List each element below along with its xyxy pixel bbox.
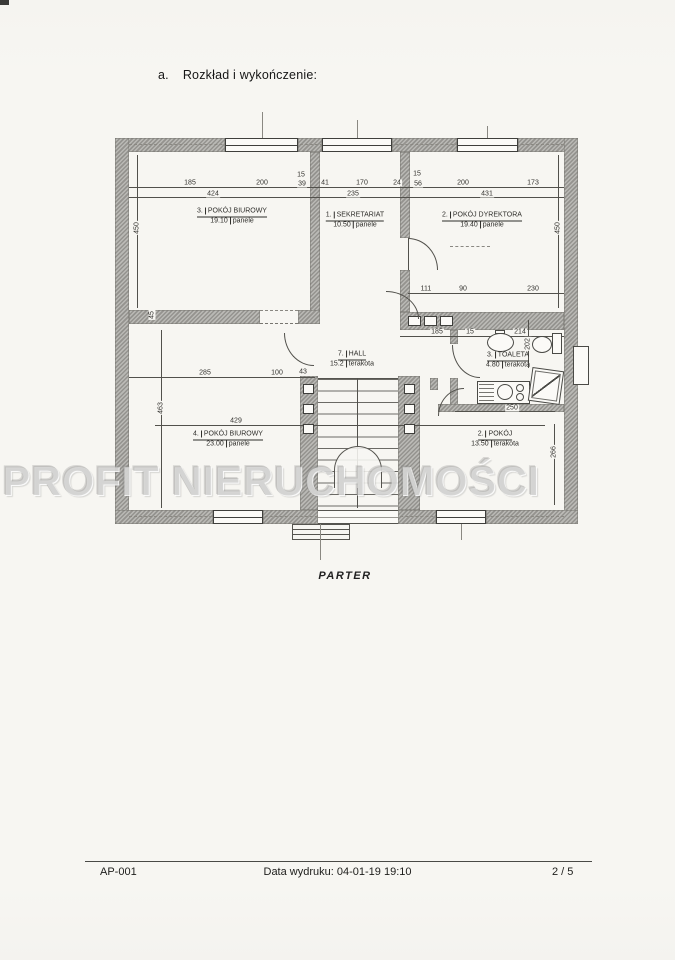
dim-label: 41 (320, 180, 330, 187)
window-bottom-2 (436, 510, 486, 524)
pier-block (404, 404, 415, 414)
entry-centerline (320, 524, 321, 560)
dim-label: 90 (458, 286, 468, 293)
dim-label: 200 (456, 180, 470, 187)
pier-block (303, 424, 314, 434)
sink-bowl (497, 384, 513, 400)
shower-tray (528, 367, 564, 405)
wall-hall-room2 (430, 378, 438, 390)
dim-label: 170 (355, 180, 369, 187)
dim-label: 173 (526, 180, 540, 187)
corridor-dashed-opening (450, 246, 490, 247)
window-top-3 (457, 138, 518, 152)
pier-block (303, 384, 314, 394)
washbasin (487, 333, 514, 352)
wall-room3-sekretariat (310, 152, 320, 312)
dim-label: 185 (430, 329, 444, 336)
dim-line (408, 293, 564, 294)
wall-bottom-seg4 (486, 510, 578, 524)
staircase (318, 378, 398, 508)
stair-pier-right (398, 376, 420, 510)
dim-label: 230 (526, 286, 540, 293)
stair-exit-opening (318, 510, 398, 524)
wall-left (115, 138, 129, 524)
pier-block (404, 384, 415, 394)
wall-top-seg2 (298, 138, 322, 152)
door-room2 (438, 388, 464, 416)
glass-block (424, 316, 437, 326)
glass-block (440, 316, 453, 326)
wall-toilet-west-upper (450, 330, 458, 344)
wall-opening-dashed (260, 310, 298, 324)
wall-bottom-seg3 (398, 510, 436, 524)
dim-label: 463 (158, 401, 165, 415)
dim-label: 235 (346, 191, 360, 198)
room-label-sekretariat: 1.SEKRETARIAT 10.50panele (326, 212, 384, 231)
dim-label: 200 (255, 180, 269, 187)
dim-label: 39 (297, 181, 307, 188)
door-room4 (284, 333, 314, 366)
dim-label: 424 (206, 191, 220, 198)
dim-line (155, 425, 545, 426)
wall-mid-left-end (298, 310, 320, 324)
room-label-pokoj-biurowy-bottom: 4.POKÓJ BIUROWY 23.00panele (193, 431, 263, 450)
dim-label: 24 (392, 180, 402, 187)
wall-right (564, 138, 578, 524)
plan-caption: PARTER (280, 570, 410, 582)
vent-shaft (573, 346, 589, 385)
room-label-pokoj-bottom: 2.POKÓJ 13.50terakota (471, 431, 519, 450)
dim-label: 202 (525, 337, 532, 351)
dim-label: 45 (149, 310, 156, 320)
dim-label: 56 (413, 181, 423, 188)
door-toilet (452, 345, 480, 378)
footer-print-info: Data wydruku: 04-01-19 19:10 (0, 866, 675, 878)
window-bottom-1 (213, 510, 263, 524)
dim-label: 15 (296, 172, 306, 179)
window-centerline (461, 524, 462, 540)
dim-label: 266 (551, 445, 558, 459)
burner (516, 393, 524, 401)
heading-text: Rozkład i wykończenie: (183, 68, 317, 82)
room-label-pokoj-biurowy-top: 3.POKÓJ BIUROWY 19.10panele (197, 208, 267, 227)
dim-label: 450 (134, 221, 141, 235)
window-centerline (357, 120, 358, 138)
window-centerline (487, 126, 488, 138)
dim-label: 431 (480, 191, 494, 198)
wall-bottom-seg1 (115, 510, 213, 524)
toilet-bowl (532, 336, 552, 353)
dim-label: 185 (183, 180, 197, 187)
room-label-toaleta: 3.TOALETA 4.80terakota (486, 352, 530, 371)
dim-line (554, 424, 555, 505)
door-dyrektor (408, 238, 438, 270)
footer-page-indicator: 2 / 5 (552, 866, 573, 878)
drainer-hatch (479, 384, 494, 402)
toilet-tank (552, 333, 562, 354)
scanned-document-page: a.Rozkład i wykończenie: (0, 0, 675, 960)
dim-label: 43 (298, 369, 308, 376)
heading-index: a. (158, 68, 169, 82)
window-top-1 (225, 138, 298, 152)
dim-label: 15 (465, 329, 475, 336)
room-label-pokoj-dyrektora: 2.POKÓJ DYREKTORA 19.40panele (442, 212, 522, 231)
dim-line (129, 187, 564, 188)
wall-bottom-seg2 (263, 510, 318, 524)
pier-block (303, 404, 314, 414)
wall-sekretariat-dyrektor-upper (400, 152, 410, 238)
dim-label: 111 (420, 286, 433, 293)
window-top-2 (322, 138, 392, 152)
dim-label: 285 (198, 370, 212, 377)
dim-line (129, 377, 315, 378)
dim-label: 429 (229, 418, 243, 425)
stair-centerline (357, 378, 358, 508)
pier-block (404, 424, 415, 434)
stair-pier-left (300, 376, 318, 510)
dim-label: 214 (513, 329, 527, 336)
entry-steps (292, 524, 350, 540)
section-heading: a.Rozkład i wykończenie: (158, 68, 317, 82)
dim-label: 450 (555, 221, 562, 235)
dim-label: 15 (412, 171, 422, 178)
washbasin-tap (495, 330, 505, 334)
wall-top-seg1 (115, 138, 225, 152)
wall-top-seg3 (392, 138, 457, 152)
footer-rule (85, 861, 592, 862)
scan-artifact (0, 0, 9, 5)
burner (516, 384, 524, 392)
window-centerline (262, 112, 263, 138)
dim-line (161, 330, 162, 508)
dim-label: 100 (270, 370, 284, 377)
dim-label: 250 (505, 405, 519, 412)
door-hall-corridor (386, 291, 419, 319)
room-label-hall: 7.HALL 15.2terakota (330, 351, 374, 370)
stair-walking-line (334, 446, 382, 488)
